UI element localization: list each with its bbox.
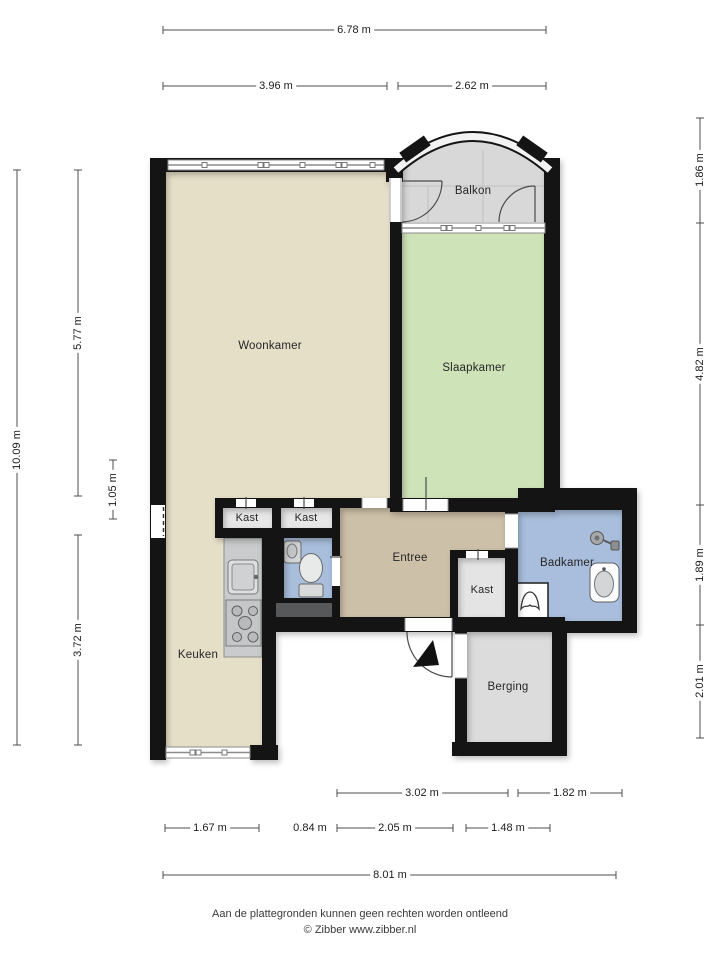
room-label-kast3: Kast: [471, 584, 494, 596]
dim-right-balkon: 1.86 m: [694, 150, 706, 190]
dim-right-berging: 2.01 m: [694, 661, 706, 701]
slaapkamer-window: [402, 223, 545, 233]
dim-bottom-berging: 1.48 m: [488, 822, 528, 834]
room-label-balkon: Balkon: [455, 185, 491, 197]
wall-right-exterior: [544, 158, 560, 510]
room-label-kast1: Kast: [236, 512, 259, 524]
shaft: [276, 603, 332, 617]
dim-left-upper: 5.77 m: [72, 313, 84, 353]
toilet-icon: [299, 554, 323, 598]
dim-right-badkamer: 1.89 m: [694, 545, 706, 585]
room-label-keuken: Keuken: [178, 649, 218, 661]
room-label-berging: Berging: [487, 681, 528, 693]
dim-left-lower: 3.72 m: [72, 620, 84, 660]
entrance-arrow-icon: [413, 640, 439, 667]
meter-niche: [151, 505, 165, 538]
woonkamer-window: [168, 160, 384, 170]
room-label-slaapkamer: Slaapkamer: [442, 362, 505, 374]
room-label-badkamer: Badkamer: [540, 557, 594, 569]
kitchen-sink-icon: [228, 560, 258, 594]
dim-top-total: 6.78 m: [334, 24, 374, 36]
floorplan-page: Woonkamer Slaapkamer Balkon Entree Badka…: [0, 0, 720, 960]
dim-left-total: 10.09 m: [11, 427, 23, 473]
dim-bottom-opening: 0.84 m: [290, 822, 330, 834]
kitchen-block: [224, 538, 262, 657]
dim-right-slaapkamer: 4.82 m: [694, 344, 706, 384]
dim-bottom-badkamer: 1.82 m: [550, 787, 590, 799]
dim-top-right: 2.62 m: [452, 80, 492, 92]
footer-disclaimer: Aan de plattegronden kunnen geen rechten…: [0, 908, 720, 920]
dim-left-middle: 1.05 m: [107, 470, 119, 510]
wall-left-exterior: [150, 158, 166, 760]
bathroom-sink-icon: [590, 563, 619, 602]
stove-icon: [226, 600, 261, 646]
room-label-woonkamer: Woonkamer: [238, 340, 302, 352]
dim-bottom-entree: 3.02 m: [402, 787, 442, 799]
dim-bottom-total: 8.01 m: [370, 869, 410, 881]
footer-credit: © Zibber www.zibber.nl: [0, 924, 720, 936]
keuken-window: [166, 747, 250, 758]
hand-basin-icon: [284, 541, 301, 563]
room-label-kast2: Kast: [295, 512, 318, 524]
dim-bottom-keuken: 1.67 m: [190, 822, 230, 834]
dim-top-left: 3.96 m: [256, 80, 296, 92]
dim-bottom-hal: 2.05 m: [375, 822, 415, 834]
room-label-entree: Entree: [392, 552, 427, 564]
